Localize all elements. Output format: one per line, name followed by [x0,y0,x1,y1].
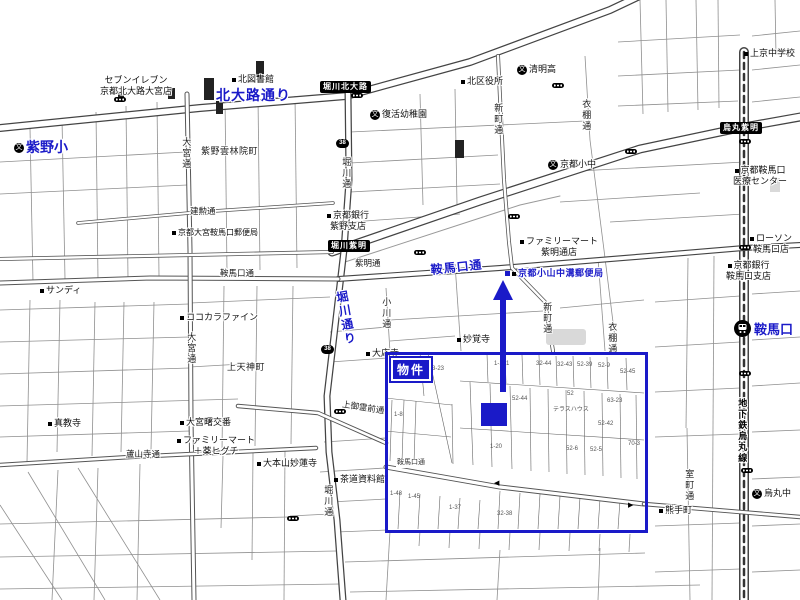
ogawa-dori-label: 小川通 [380,297,391,330]
horikawa-kitaoji-box: 堀川北大路 [320,81,371,93]
label-text: 堀川通 [323,485,333,518]
dot-icon [750,237,754,241]
omiya-dori-north-label: 大宮通 [180,137,191,170]
fukkatsu-kindergarten-label: 文復活幼稚園 [370,109,427,120]
route-shield: 38 [336,139,349,148]
label-text: 茶道資料館 [340,474,385,484]
traffic-signal-icon [414,250,426,255]
seven-eleven-label: セブンイレブン 京都北大路大宮店 [100,75,172,98]
label-text: ファミリーマート ＋薬ヒグチ [183,435,255,456]
label-text: 大本山妙蓮寺 [263,458,317,468]
traffic-signal-icon [739,139,751,144]
horikawa-dori-label: 堀川通り [333,289,357,347]
shimei-dori-label: 紫明通 [355,258,381,269]
school-icon: 文 [752,489,762,499]
shinmachi-dori-north-label: 新町通 [492,103,503,136]
sandy-label: サンディ [40,285,81,296]
dot-icon [180,421,184,425]
label-text: 大宮通 [186,332,196,365]
label-text: 新町通 [493,103,503,136]
cocokara-fine-label: ココカラファイン [180,312,258,323]
label-text: 紫野雲林院町 [201,146,258,156]
muromachi-dori-label: 室町通 [683,469,694,502]
dot-icon [735,169,739,173]
koromonotana-dori-south-label: 衣棚通 [606,322,617,355]
label-text: 京都鞍馬口 医療センター [733,165,787,186]
school-icon: 文 [548,160,558,170]
traffic-signal-icon [287,516,299,521]
label-text: 紫野小 [26,139,68,155]
label-text: サンディ [46,285,81,295]
label-text: 北大路通り [216,87,291,103]
school-icon: 文 [14,143,24,153]
kamigoryo-mae-dori-label: 上御霊前通 [341,399,385,416]
label-text: ファミリーマート 紫明通店 [526,236,598,257]
label-text: 京都銀行 紫野支店 [330,210,369,231]
label-text: 大宮通 [181,137,191,170]
label-text: 鞍馬口通 [220,268,254,278]
rozanji-dori-label: 蘆山寺通 [126,449,160,460]
traffic-signal-icon [334,409,346,414]
label-text: 京都小山中溝郵便局 [518,268,604,278]
karasuma-subway-line-label: 地下鉄烏丸線 [736,398,747,464]
label-text: 堀川通り [334,289,358,347]
dot-icon [512,272,516,276]
label-text: 上天神町 [227,362,265,372]
label-text: 北図書館 [238,74,274,84]
label-text: 蘆山寺通 [126,449,160,459]
kuramaguchi-dori-west-label: 鞍馬口通 [220,268,254,279]
label-text: 地下鉄烏丸線 [737,398,747,464]
dot-icon [177,439,181,443]
subway-station-icon [734,320,751,337]
property-pointer-arrow [490,278,516,394]
murasakino-elementary-label: 文紫野小 [14,139,68,157]
koromonotana-dori-north-label: 衣棚通 [580,99,591,132]
dot-icon [327,214,331,218]
label-text: 衣棚通 [581,99,591,132]
kyoto-bank-murasakino-label: 京都銀行 紫野支店 [327,210,369,233]
dot-icon [520,240,524,244]
label-text: 上京中学校 [750,48,795,58]
label-text: 清明高 [529,64,556,74]
school-icon: 文 [370,110,380,120]
traffic-signal-icon [739,245,751,250]
property-label-box: 物件 [389,356,433,383]
familymart-higuchi-label: ファミリーマート ＋薬ヒグチ [177,435,255,458]
label-text: 建勲通 [190,206,216,216]
kuramaguchi-dori-blue-label: 鞍馬口通 [430,258,483,278]
dot-icon [744,52,748,56]
kuramaguchi-medical-center-label: 京都鞍馬口 医療センター [733,165,787,188]
label-text: 大宮曙交番 [186,417,231,427]
traffic-signal-icon [508,214,520,219]
kamitenjin-cho-label: 上天神町 [227,362,265,373]
horikawa-dori-south-label: 堀川通 [322,485,333,518]
lawson-kuramaguchi-label: ローソン 鞍馬口店 [750,233,792,256]
label-text: 京都銀行 鞍馬口支店 [726,260,771,281]
dot-icon [659,509,663,513]
koyama-nakamizo-post-office-label: 京都小山中溝郵便局 [505,268,604,279]
label-text: セブンイレブン 京都北大路大宮店 [100,75,172,96]
dot-icon [232,78,236,82]
dot-icon [457,338,461,342]
traffic-signal-icon [625,149,637,154]
traffic-signal-icon [552,83,564,88]
traffic-signal-icon [741,468,753,473]
karasuma-chu-label: 文烏丸中 [752,488,791,499]
label-text: 小川通 [381,297,391,330]
dot-icon [48,422,52,426]
familymart-shimei-label: ファミリーマート 紫明通店 [520,236,598,259]
sado-museum-label: 茶道資料館 [334,474,385,485]
label-text: 妙覚寺 [463,334,490,344]
label-text: 鞍馬口通 [430,258,483,277]
label-text: 熊手町 [665,505,692,515]
myorenji-label: 大本山妙蓮寺 [257,458,317,469]
map-stage[interactable]: 北大路通り堀川通り鞍馬口通文紫野小鞍馬口京都小山中溝郵便局堀川北大路堀川紫明烏丸… [0,0,800,600]
traffic-signal-icon [351,93,363,98]
omiya-koban-label: 大宮曙交番 [180,417,231,428]
bluesq-icon [505,271,510,276]
karasuma-shimei-box: 烏丸紫明 [720,122,762,134]
traffic-signal-icon [739,371,751,376]
myokakuji-label: 妙覚寺 [457,334,490,345]
kamigyo-jhs-label: 上京中学校 [744,48,795,59]
kyoto-shochu-label: 文京都小中 [548,159,596,170]
label-text: 烏丸中 [764,488,791,498]
label-text: ローソン 鞍馬口店 [753,233,792,254]
kumade-cho-label: 熊手町 [659,505,692,516]
traffic-signal-icon [114,97,126,102]
label-text: 室町通 [684,469,694,502]
dot-icon [257,462,261,466]
label-text: 紫明通 [355,258,381,268]
omiya-dori-south-label: 大宮通 [185,332,196,365]
horikawa-shimei-box: 堀川紫明 [328,240,370,252]
dot-icon [366,352,370,356]
label-text: 北区役所 [467,76,503,86]
label-text: 上御霊前通 [341,399,385,416]
label-text: 堀川北大路 [323,82,368,91]
school-icon: 文 [517,65,527,75]
shinkyoji-label: 真教寺 [48,418,81,429]
label-text: 京都小中 [560,159,596,169]
kuramaguchi-station-label: 鞍馬口 [754,322,793,338]
property-label: 物件 [393,360,429,379]
shinmachi-dori-south-label: 新町通 [541,302,552,335]
kitaoji-dori-label: 北大路通り [216,87,291,105]
kita-ward-office-label: 北区役所 [461,76,503,87]
label-text: 京都大宮鞍馬口郵便局 [178,228,258,237]
label-text: 堀川紫明 [331,241,367,250]
dot-icon [728,264,732,268]
kenkun-dori-label: 建勲通 [190,206,216,217]
dot-icon [334,478,338,482]
kita-library-label: 北図書館 [232,74,274,85]
omiya-kuramaguchi-post-office-label: 京都大宮鞍馬口郵便局 [172,228,258,238]
murasakino-unrinin-cho-label: 紫野雲林院町 [201,146,258,157]
route-shield: 38 [321,345,334,354]
label-text: 復活幼稚園 [382,109,427,119]
seimei-high-label: 文清明高 [517,64,556,75]
label-text: 真教寺 [54,418,81,428]
kyoto-bank-kuramaguchi-label: 京都銀行 鞍馬口支店 [726,260,771,283]
dot-icon [180,316,184,320]
dot-icon [172,231,176,235]
label-text: ココカラファイン [186,312,258,322]
label-text: 鞍馬口 [754,322,793,337]
label-text: 堀川通 [341,157,351,190]
label-text: 烏丸紫明 [723,123,759,132]
horikawa-dori-north-label: 堀川通 [340,157,351,190]
dot-icon [40,289,44,293]
dot-icon [461,80,465,84]
label-text: 衣棚通 [607,322,617,355]
label-text: 新町通 [542,302,552,335]
